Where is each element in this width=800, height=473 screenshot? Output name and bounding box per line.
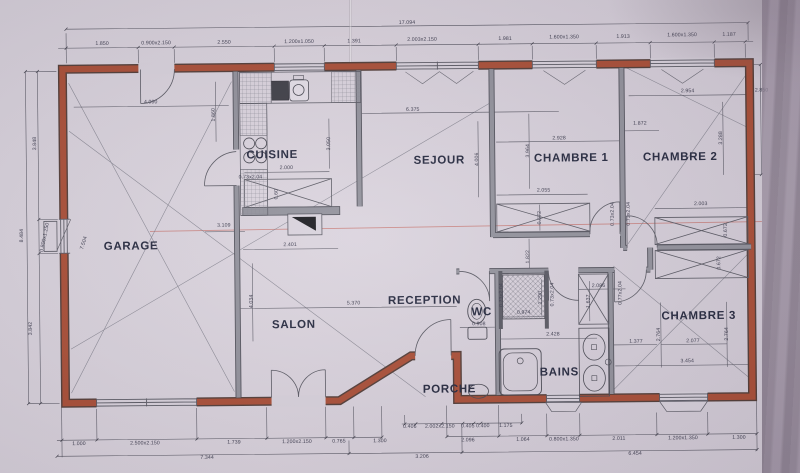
dimension-label: 0.974 bbox=[517, 310, 531, 316]
dimension-label: 0.60 bbox=[274, 189, 280, 200]
dimension-label: 2.011 bbox=[612, 436, 625, 442]
dimension-label: 0.800x1.350 bbox=[549, 436, 579, 442]
dimension-label: 0.765 bbox=[332, 439, 346, 445]
dimension-label: 1.300 bbox=[732, 435, 746, 441]
dimension-label: 5.370 bbox=[347, 300, 361, 306]
room-label-chambre-3: CHAMBRE 3 bbox=[661, 310, 736, 323]
dimension-label: 0.672 bbox=[723, 223, 729, 237]
dimension-label: 3.454 bbox=[680, 358, 694, 364]
room-label-salon: SALON bbox=[272, 319, 316, 331]
dimension-label: 1.860 bbox=[211, 108, 217, 122]
dimension-label: 4.006 bbox=[474, 152, 480, 166]
dimension-label: 1.300 bbox=[373, 438, 387, 444]
dimension-label: 7.344 bbox=[200, 455, 214, 461]
dimension-label: 1.739 bbox=[227, 440, 241, 446]
dimension-label: 2.428 bbox=[546, 331, 560, 337]
dimension-label: 0.73x2.04 bbox=[549, 283, 555, 307]
dimension-label: 6.375 bbox=[406, 107, 420, 113]
dimension-label: 1.064 bbox=[516, 437, 530, 443]
dimension-label: 1.637 bbox=[586, 294, 592, 308]
dimension-label: 8.484 bbox=[19, 229, 25, 243]
dimension-label: 2.096 bbox=[461, 437, 475, 443]
dimension-label: 0.406 bbox=[403, 424, 417, 430]
dimension-label: 1.850 bbox=[95, 41, 109, 47]
dimension-label: 1.981 bbox=[498, 36, 512, 42]
dimension-label: 0.800x1.250 bbox=[39, 222, 51, 252]
dimension-label: 2.003x2.150 bbox=[407, 37, 437, 43]
dimension-label: 2.055 bbox=[537, 188, 551, 194]
room-label-reception: RECEPTION bbox=[388, 294, 461, 307]
dimension-label: 0.900x2.150 bbox=[141, 40, 171, 46]
room-label-sejour: SEJOUR bbox=[414, 154, 466, 166]
dimension-label: 1.600x1.350 bbox=[549, 34, 579, 40]
paper-shadow-right bbox=[762, 0, 800, 473]
room-label-garage: GARAGE bbox=[104, 240, 159, 253]
room-label-cuisine: CUISINE bbox=[246, 149, 298, 161]
dimension-label: 0.400 bbox=[476, 423, 490, 429]
dimension-label: 17.094 bbox=[399, 20, 416, 26]
dimension-label: 4.034 bbox=[249, 295, 255, 309]
dimension-label: 0.908 bbox=[472, 321, 486, 327]
dimension-label: 3.842 bbox=[28, 322, 34, 336]
room-label-bains: BAINS bbox=[540, 366, 579, 378]
dimension-label: 1.175 bbox=[499, 423, 513, 429]
dimension-label: 1.872 bbox=[633, 121, 647, 127]
paper-fold-crease bbox=[349, 0, 352, 62]
dimension-label: 7.504 bbox=[79, 236, 89, 251]
dimension-label: 3.206 bbox=[415, 454, 429, 460]
dimension-label: 0.405 bbox=[461, 423, 475, 429]
dimension-label: 3.288 bbox=[718, 131, 724, 145]
dimension-label: 1.290 bbox=[538, 291, 544, 305]
dimension-label: 0.73x2.04 bbox=[626, 202, 632, 226]
dimension-label: 0.77x2.04 bbox=[617, 281, 623, 305]
dimension-label: 2.401 bbox=[283, 242, 297, 248]
dimension-label: 1.000 bbox=[72, 441, 86, 447]
dimension-label: 2.500x2.150 bbox=[130, 440, 160, 446]
room-label-chambre-1: CHAMBRE 1 bbox=[534, 152, 609, 165]
dimension-label: 0.672 bbox=[716, 256, 722, 270]
dimension-label: 2.550 bbox=[217, 40, 231, 46]
dimension-label: 1.822 bbox=[525, 250, 531, 264]
dimension-label: 2.003 bbox=[694, 201, 708, 207]
dimension-label: 2.002x2.150 bbox=[425, 423, 455, 429]
dimension-label: 0.73x2.04 bbox=[498, 283, 504, 307]
dimension-label: 1.200x1.350 bbox=[668, 435, 698, 441]
dimension-label: 2.928 bbox=[552, 135, 566, 141]
dimension-label: 3.964 bbox=[525, 144, 531, 158]
dimension-label: 3.050 bbox=[326, 137, 332, 151]
dimension-label: 3.109 bbox=[217, 223, 231, 229]
dimension-label: 0.73x2.04 bbox=[239, 174, 263, 180]
dimension-label: 2.764 bbox=[656, 328, 662, 342]
dimension-label: 2.000 bbox=[280, 165, 294, 171]
dimension-label: 2.077 bbox=[686, 338, 700, 344]
floorplan-photo: GARAGECUISINESEJOURCHAMBRE 1CHAMBRE 2CHA… bbox=[0, 0, 800, 473]
dimension-label: 2.086 bbox=[592, 283, 606, 289]
dimension-label: 2.764 bbox=[724, 327, 730, 341]
dimension-label: 0.672 bbox=[537, 211, 543, 225]
dimension-label: 3.848 bbox=[32, 137, 38, 151]
room-label-wc: WC bbox=[471, 306, 492, 318]
room-label-porche: PORCHE bbox=[423, 383, 476, 396]
dimension-label: 1.377 bbox=[629, 339, 643, 345]
dimension-label: 1.200x2.150 bbox=[282, 439, 312, 445]
dimension-label: 1.200x1.050 bbox=[284, 39, 314, 45]
room-label-chambre-2: CHAMBRE 2 bbox=[643, 151, 718, 164]
dimension-label: 0.73x2.04 bbox=[610, 202, 616, 226]
dimension-label: 6.454 bbox=[628, 451, 642, 457]
dimension-label: 4.000 bbox=[144, 99, 158, 105]
